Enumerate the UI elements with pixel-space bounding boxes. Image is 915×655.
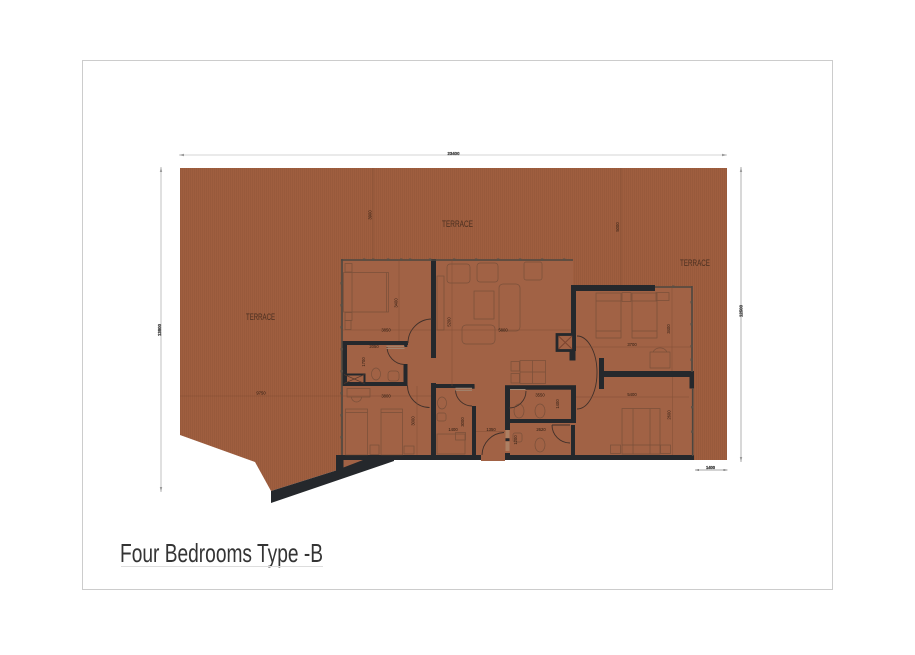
svg-text:23400: 23400 xyxy=(448,151,461,156)
svg-text:3700: 3700 xyxy=(627,342,637,347)
svg-text:Four Bedrooms Type -B: Four Bedrooms Type -B xyxy=(120,538,323,568)
svg-text:1400: 1400 xyxy=(448,427,458,432)
svg-text:3800: 3800 xyxy=(381,394,391,399)
svg-text:1400: 1400 xyxy=(706,465,716,470)
svg-text:3400: 3400 xyxy=(666,324,671,334)
svg-text:9750: 9750 xyxy=(256,391,266,396)
svg-text:13800: 13800 xyxy=(157,323,162,336)
svg-text:2600: 2600 xyxy=(667,410,672,420)
svg-text:5400: 5400 xyxy=(627,392,637,397)
svg-text:5200: 5200 xyxy=(447,317,452,327)
svg-text:3400: 3400 xyxy=(394,298,399,308)
svg-text:TERRACE: TERRACE xyxy=(680,258,710,268)
svg-text:3550: 3550 xyxy=(535,393,545,398)
svg-text:2620: 2620 xyxy=(536,427,546,432)
svg-text:TERRACE: TERRACE xyxy=(442,219,473,229)
svg-text:2050: 2050 xyxy=(369,344,379,349)
svg-text:1350: 1350 xyxy=(486,427,496,432)
svg-text:12500: 12500 xyxy=(739,304,744,317)
svg-text:1400: 1400 xyxy=(555,399,560,409)
svg-text:1200: 1200 xyxy=(513,435,518,445)
svg-text:3000: 3000 xyxy=(460,417,465,427)
svg-text:3000: 3000 xyxy=(411,416,416,426)
svg-text:5800: 5800 xyxy=(498,328,508,333)
svg-text:TERRACE: TERRACE xyxy=(246,312,275,322)
svg-text:3850: 3850 xyxy=(381,328,391,333)
svg-text:1700: 1700 xyxy=(361,357,366,367)
svg-text:3900: 3900 xyxy=(368,210,373,220)
svg-text:5000: 5000 xyxy=(615,222,620,232)
